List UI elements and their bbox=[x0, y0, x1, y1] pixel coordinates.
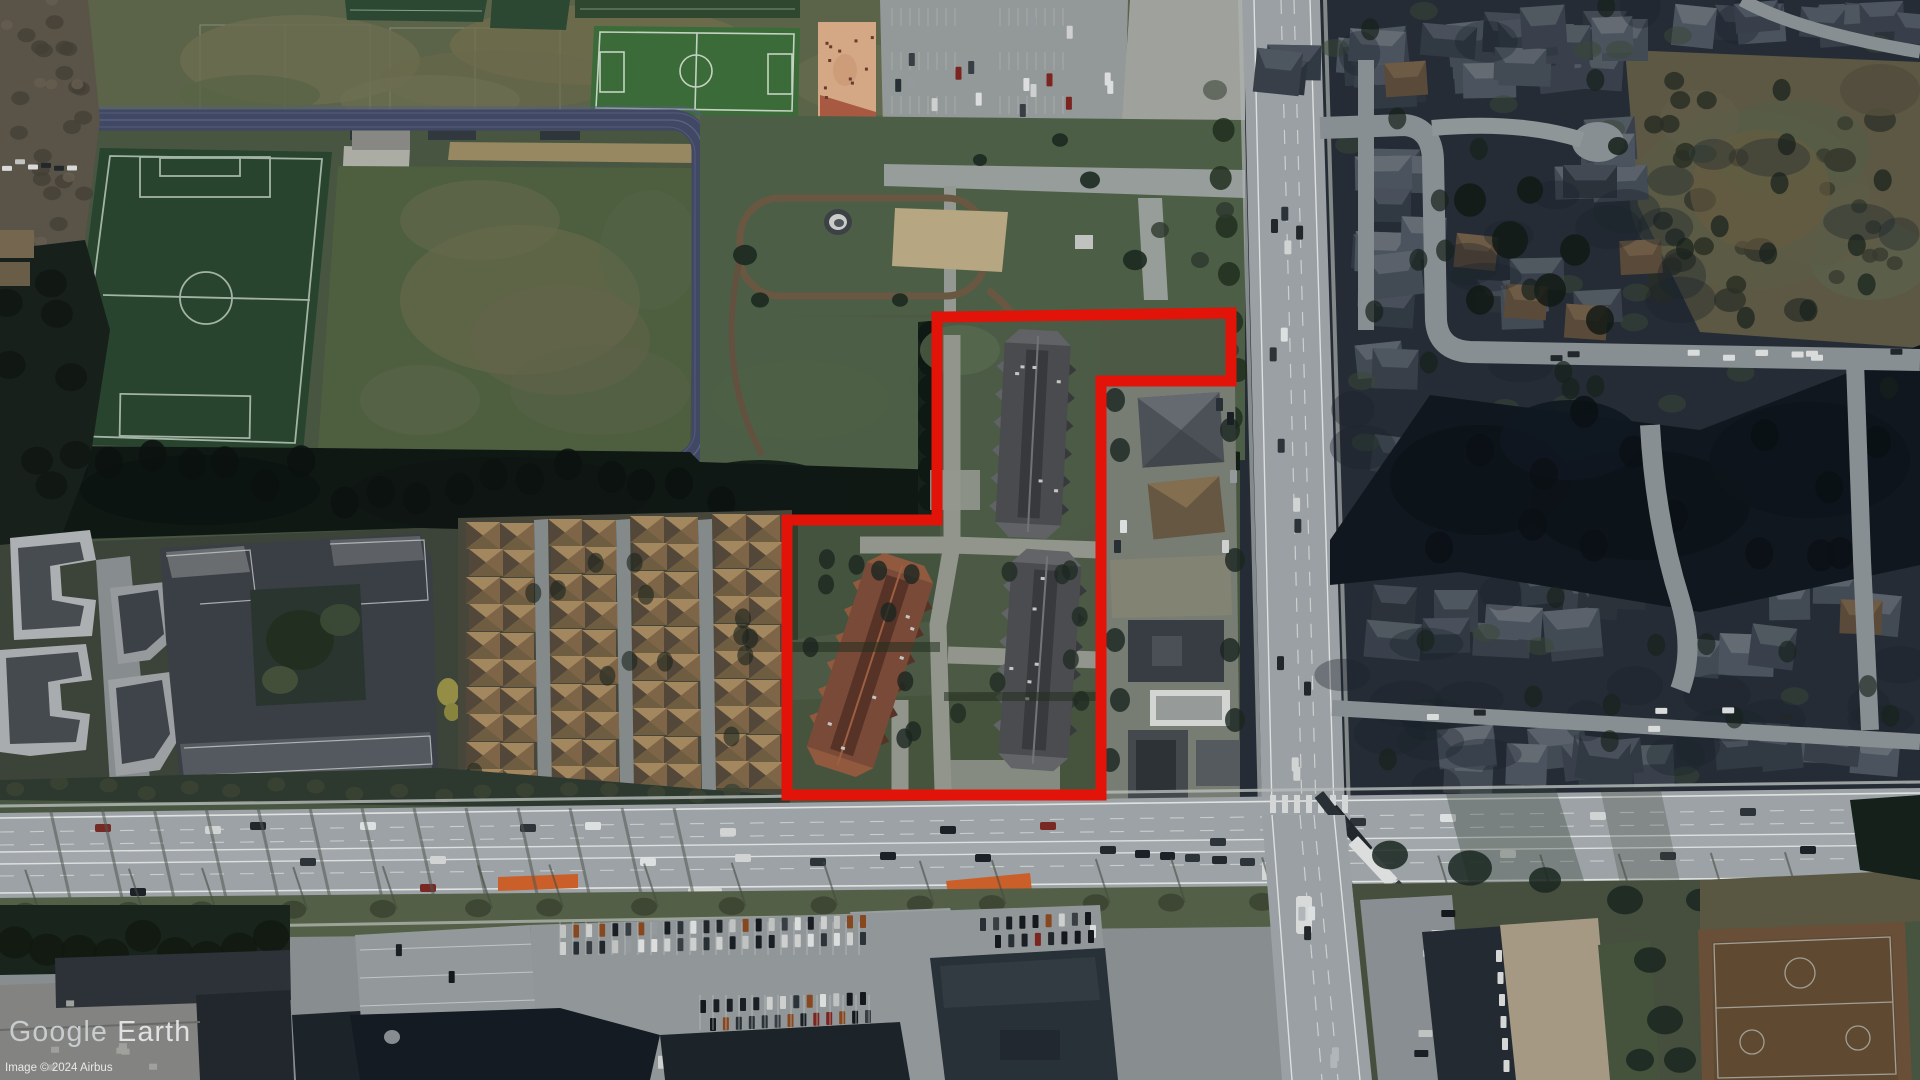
svg-text:Image © 2024 Airbus: Image © 2024 Airbus bbox=[5, 1062, 113, 1074]
svg-text:Google Earth: Google Earth bbox=[9, 1016, 191, 1048]
